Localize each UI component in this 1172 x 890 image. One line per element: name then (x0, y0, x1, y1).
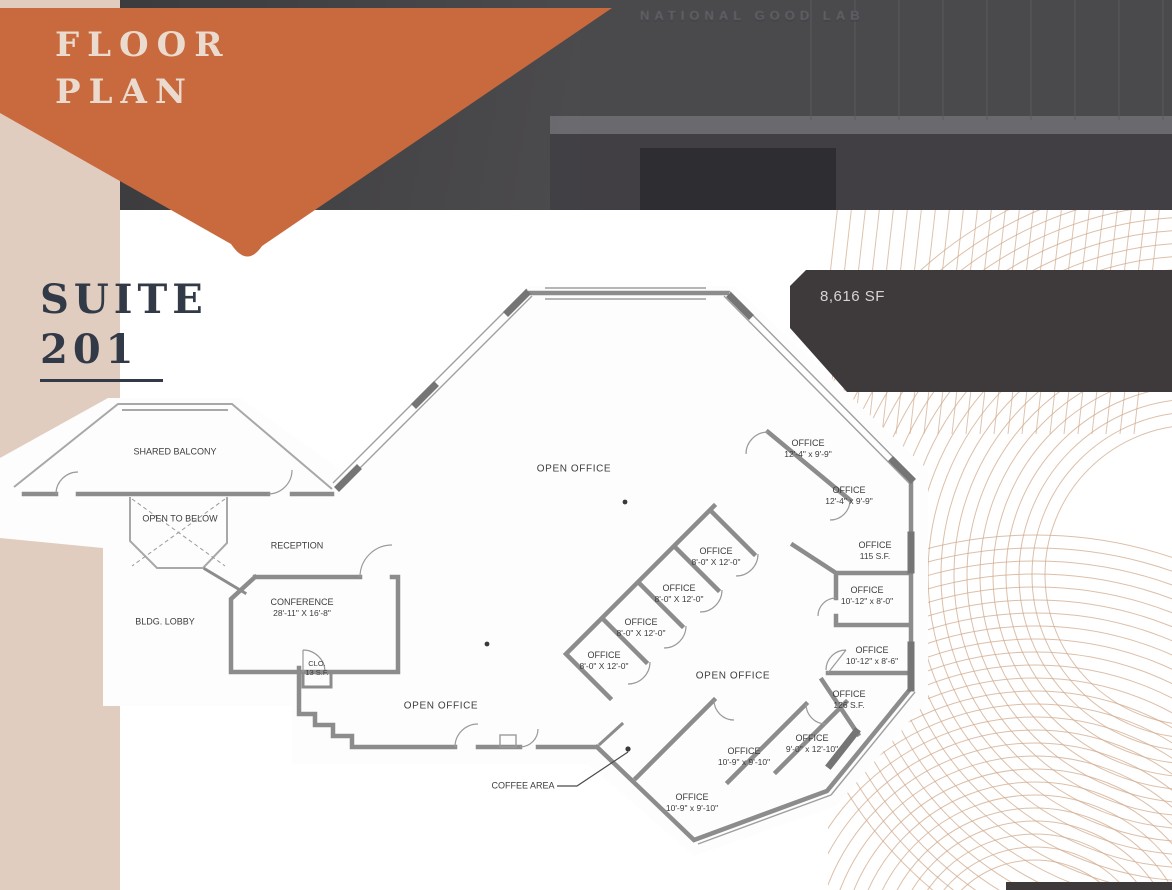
coffee-door-dot (625, 746, 630, 751)
suite-word: SUITE (40, 275, 208, 325)
suite-number: 201 (40, 325, 163, 382)
suite-heading: SUITE 201 (40, 275, 208, 382)
room-label-office-a1: OFFICE8'-0" X 12'-0" (692, 546, 741, 568)
room-label-office-115sf: OFFICE115 S.F. (859, 540, 892, 562)
page-title: FLOOR PLAN (55, 22, 231, 116)
plan-dot (623, 500, 628, 505)
plan-dot (485, 642, 490, 647)
room-label-open-to-below: OPEN TO BELOW (142, 514, 217, 525)
room-label-coffee-area: COFFEE AREA (491, 781, 554, 792)
floor-plan-flyer: { "header": { "title_line1": "FLOOR", "t… (0, 0, 1172, 890)
room-label-office-126sf: OFFICE126 S.F. (833, 689, 866, 711)
room-label-bldg-lobby: BLDG. LOBBY (135, 617, 195, 628)
room-label-conference: CONFERENCE28'-11" X 16'-8" (270, 597, 333, 619)
area-badge-label: 8,616 SF (820, 288, 885, 305)
room-label-office-b2: OFFICE12'-4" x 9'-9" (825, 485, 873, 507)
building-photo: NATIONAL GOOD LAB (120, 0, 1172, 210)
room-label-office-d3: OFFICE10'-9" x 9'-10" (666, 792, 718, 814)
room-label-office-c3: OFFICE10'-12" x 8'-6" (846, 645, 898, 667)
building-sign-text: NATIONAL GOOD LAB (640, 8, 865, 23)
room-label-shared-balcony: SHARED BALCONY (133, 447, 216, 458)
room-label-office-d1: OFFICE9'-0" x 12'-10" (786, 733, 838, 755)
room-label-office-a3: OFFICE8'-0" X 12'-0" (617, 617, 666, 639)
bottom-accent-bar (1006, 882, 1172, 890)
area-badge: 8,616 SF (790, 270, 1172, 392)
room-label-office-d2: OFFICE10'-9" x 9'-10" (718, 746, 770, 768)
room-label-office-a4: OFFICE8'-0" X 12'-0" (580, 650, 629, 672)
title-line-2: PLAN (55, 69, 231, 116)
room-label-open-office-top: OPEN OFFICE (537, 464, 611, 475)
title-line-1: FLOOR (55, 22, 231, 69)
room-label-open-office-left: OPEN OFFICE (404, 701, 478, 712)
photo-window (640, 148, 836, 210)
room-label-reception: RECEPTION (271, 541, 324, 552)
room-label-open-office-right: OPEN OFFICE (696, 671, 770, 682)
room-label-office-a2: OFFICE8'-0" X 12'-0" (655, 583, 704, 605)
room-label-closet: CLO.13 S.F. (305, 659, 328, 677)
room-label-office-c2: OFFICE10'-12" x 8'-0" (841, 585, 893, 607)
room-label-office-b1: OFFICE12'-4" x 9'-9" (784, 438, 832, 460)
